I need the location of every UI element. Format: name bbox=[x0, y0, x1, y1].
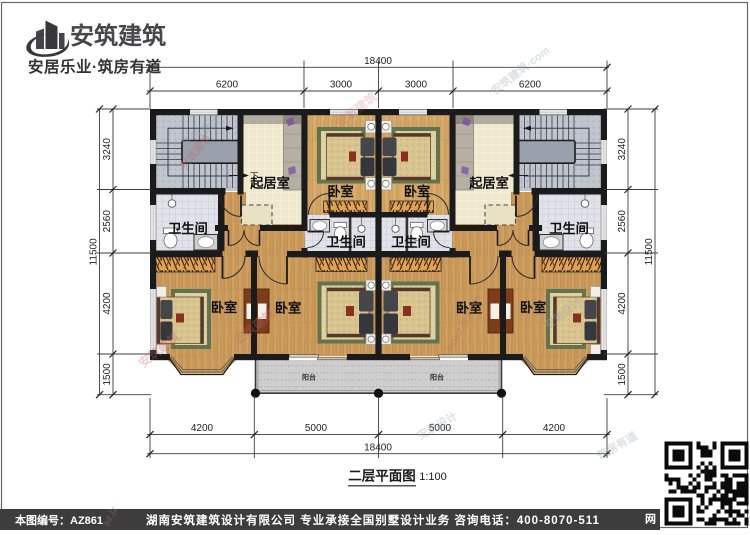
svg-text:阳台: 阳台 bbox=[302, 373, 316, 382]
svg-text:本图编号：AZ861: 本图编号：AZ861 bbox=[15, 513, 103, 527]
svg-text:18400: 18400 bbox=[364, 443, 392, 454]
svg-text:3000: 3000 bbox=[330, 80, 353, 91]
svg-text:4200: 4200 bbox=[191, 423, 214, 434]
svg-text:起居室: 起居室 bbox=[468, 175, 509, 191]
svg-text:阳台: 阳台 bbox=[430, 373, 444, 382]
svg-text:卫生间: 卫生间 bbox=[326, 234, 366, 250]
svg-text:卫生间: 卫生间 bbox=[168, 220, 208, 236]
svg-text:卧室: 卧室 bbox=[404, 183, 430, 199]
svg-text:4200: 4200 bbox=[102, 292, 113, 315]
svg-text:11500: 11500 bbox=[89, 238, 100, 266]
svg-text:11500: 11500 bbox=[644, 238, 655, 266]
svg-text:4200: 4200 bbox=[543, 423, 566, 434]
svg-text:卧室: 卧室 bbox=[520, 299, 546, 315]
svg-text:湖南安筑建筑设计有限公司 专业承接全国别墅设计业务 咨询: 湖南安筑建筑设计有限公司 专业承接全国别墅设计业务 咨询电话：400-8070-… bbox=[146, 513, 600, 527]
svg-text:网: 网 bbox=[645, 513, 656, 526]
svg-text:3240: 3240 bbox=[617, 138, 628, 161]
svg-text:3240: 3240 bbox=[102, 138, 113, 161]
svg-text:二层平面图: 二层平面图 bbox=[348, 469, 416, 484]
svg-text:4200: 4200 bbox=[617, 292, 628, 315]
svg-text:卫生间: 卫生间 bbox=[549, 220, 589, 236]
svg-text:3000: 3000 bbox=[405, 80, 428, 91]
svg-text:1:100: 1:100 bbox=[419, 471, 447, 483]
svg-text:下: 下 bbox=[250, 171, 259, 181]
svg-text:1500: 1500 bbox=[617, 363, 628, 386]
svg-text:卧室: 卧室 bbox=[275, 300, 301, 316]
svg-text:6200: 6200 bbox=[519, 80, 542, 91]
svg-text:2560: 2560 bbox=[102, 210, 113, 233]
svg-text:6200: 6200 bbox=[216, 80, 239, 91]
svg-text:1500: 1500 bbox=[102, 363, 113, 386]
svg-text:卧室: 卧室 bbox=[211, 299, 237, 315]
svg-text:2560: 2560 bbox=[617, 210, 628, 233]
svg-text:5000: 5000 bbox=[305, 423, 328, 434]
svg-text:卫生间: 卫生间 bbox=[391, 234, 431, 250]
svg-text:18400: 18400 bbox=[364, 56, 392, 67]
svg-text:卧室: 卧室 bbox=[327, 183, 353, 199]
svg-text:安筑建筑: 安筑建筑 bbox=[70, 22, 166, 50]
svg-text:安居乐业·筑房有道: 安居乐业·筑房有道 bbox=[28, 57, 162, 76]
